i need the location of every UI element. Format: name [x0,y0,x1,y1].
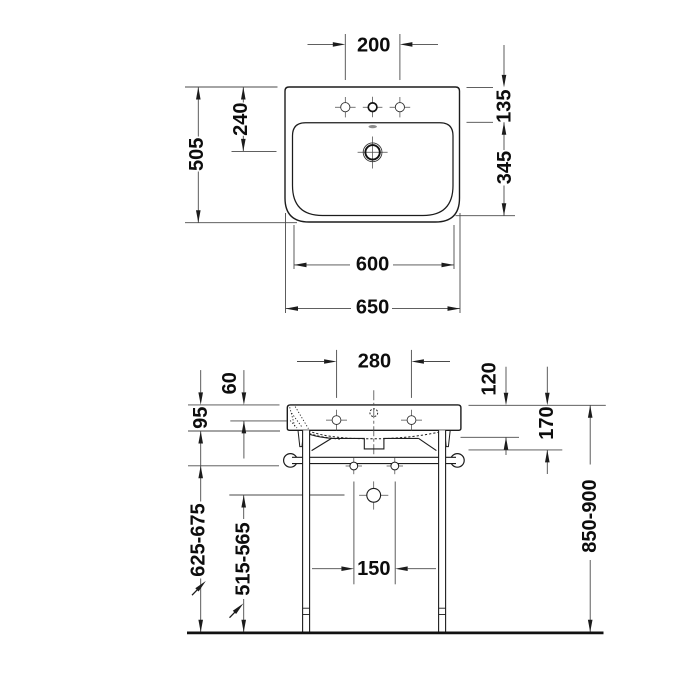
svg-text:600: 600 [356,253,389,275]
svg-text:280: 280 [358,350,391,372]
svg-text:150: 150 [357,558,390,580]
svg-text:515-565: 515-565 [233,522,255,595]
svg-text:120: 120 [479,362,501,395]
svg-text:625-675: 625-675 [188,503,210,576]
svg-text:95: 95 [190,407,212,429]
svg-text:135: 135 [493,90,515,123]
svg-text:345: 345 [494,151,516,184]
svg-text:60: 60 [219,372,241,394]
svg-text:505: 505 [186,138,208,171]
svg-text:850-900: 850-900 [579,479,601,552]
svg-text:240: 240 [230,103,252,136]
svg-text:650: 650 [356,297,389,319]
svg-text:200: 200 [357,34,390,56]
svg-text:170: 170 [536,406,558,439]
